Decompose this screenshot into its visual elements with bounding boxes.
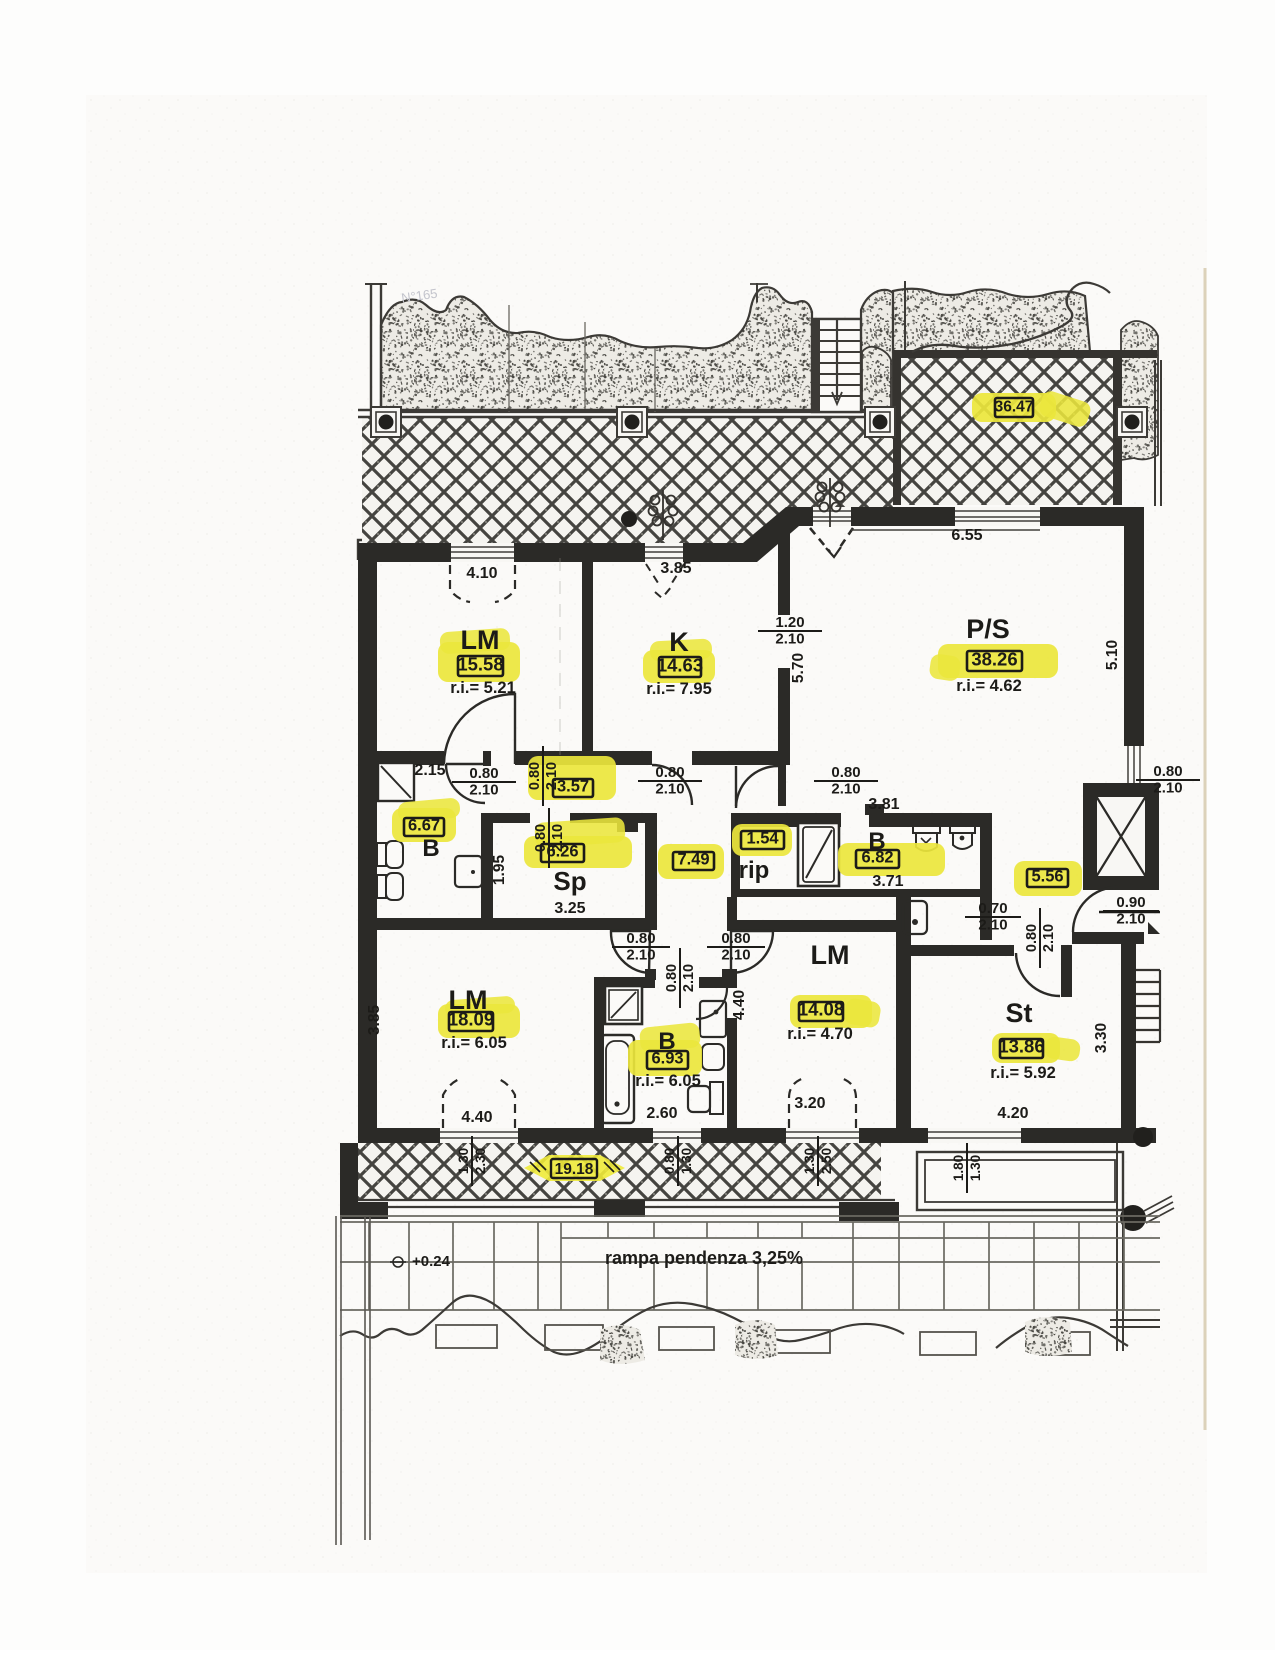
svg-text:6.67: 6.67 <box>408 817 440 835</box>
svg-text:0.70: 0.70 <box>978 900 1007 917</box>
svg-text:4.40: 4.40 <box>461 1109 492 1126</box>
svg-text:r.i.= 6.05: r.i.= 6.05 <box>441 1034 507 1052</box>
svg-text:rip: rip <box>739 857 770 884</box>
svg-text:LM: LM <box>461 625 500 655</box>
svg-text:1.95: 1.95 <box>491 855 508 886</box>
svg-text:5.56: 5.56 <box>1031 868 1063 886</box>
svg-text:2.10: 2.10 <box>626 947 655 964</box>
svg-text:P/S: P/S <box>966 614 1010 644</box>
svg-text:0.80: 0.80 <box>626 930 655 947</box>
svg-text:1.30: 1.30 <box>456 1148 471 1174</box>
svg-text:2.10: 2.10 <box>550 824 566 852</box>
svg-text:2.15: 2.15 <box>414 762 445 779</box>
svg-text:B: B <box>868 828 885 855</box>
svg-text:3.30: 3.30 <box>1093 1023 1110 1053</box>
svg-text:LM: LM <box>449 985 488 1015</box>
svg-text:38.26: 38.26 <box>971 649 1017 670</box>
svg-text:4.40: 4.40 <box>731 990 748 1020</box>
svg-text:4.20: 4.20 <box>997 1105 1028 1122</box>
svg-text:2.10: 2.10 <box>1153 780 1182 797</box>
svg-text:2.10: 2.10 <box>721 947 750 964</box>
svg-text:2.10: 2.10 <box>1041 924 1057 952</box>
svg-text:LM: LM <box>811 940 850 970</box>
svg-text:0.80: 0.80 <box>1153 763 1182 780</box>
svg-text:14.63: 14.63 <box>657 655 703 676</box>
svg-text:13.86: 13.86 <box>998 1036 1044 1057</box>
svg-text:3.85: 3.85 <box>660 560 691 577</box>
svg-text:0.80: 0.80 <box>533 824 549 852</box>
svg-text:2.60: 2.60 <box>646 1105 677 1122</box>
svg-text:St: St <box>1006 998 1033 1028</box>
svg-text:15.58: 15.58 <box>457 654 503 675</box>
svg-text:0.80: 0.80 <box>831 764 860 781</box>
svg-text:0.80: 0.80 <box>664 964 680 992</box>
svg-text:3.25: 3.25 <box>554 900 585 917</box>
svg-text:0.80: 0.80 <box>721 930 750 947</box>
svg-text:3.57: 3.57 <box>557 778 589 796</box>
svg-text:3.20: 3.20 <box>794 1095 825 1112</box>
svg-text:1.20: 1.20 <box>775 614 804 631</box>
svg-text:2.10: 2.10 <box>469 782 498 799</box>
svg-text:3.81: 3.81 <box>868 796 899 813</box>
svg-text:2.30: 2.30 <box>473 1148 488 1174</box>
svg-text:r.i.= 5.92: r.i.= 5.92 <box>990 1064 1056 1082</box>
svg-text:0.90: 0.90 <box>1116 894 1145 911</box>
svg-text:r.i.= 4.62: r.i.= 4.62 <box>956 677 1022 695</box>
svg-text:2.10: 2.10 <box>1116 911 1145 928</box>
svg-text:2.10: 2.10 <box>655 781 684 798</box>
svg-text:r.i.= 4.70: r.i.= 4.70 <box>787 1025 853 1043</box>
svg-text:r.i.= 5.21: r.i.= 5.21 <box>450 679 516 697</box>
svg-text:0.80: 0.80 <box>1024 924 1040 952</box>
svg-text:6.55: 6.55 <box>951 527 982 544</box>
svg-text:7.49: 7.49 <box>677 851 709 869</box>
svg-text:19.18: 19.18 <box>555 1161 594 1178</box>
svg-text:2.10: 2.10 <box>544 762 560 790</box>
svg-text:B: B <box>422 835 439 862</box>
svg-text:1.30: 1.30 <box>968 1155 983 1181</box>
svg-text:5.70: 5.70 <box>790 653 807 683</box>
svg-text:2.10: 2.10 <box>681 964 697 992</box>
svg-text:3.85: 3.85 <box>366 1005 383 1036</box>
svg-text:36.47: 36.47 <box>995 399 1034 416</box>
svg-text:Sp: Sp <box>553 866 586 896</box>
svg-text:2.10: 2.10 <box>831 781 860 798</box>
svg-text:0.80: 0.80 <box>655 764 684 781</box>
svg-text:3.71: 3.71 <box>872 873 903 890</box>
svg-text:14.08: 14.08 <box>798 999 844 1020</box>
svg-text:1.30: 1.30 <box>802 1148 817 1174</box>
svg-text:r.i.= 6.05: r.i.= 6.05 <box>635 1072 701 1090</box>
svg-text:4.10: 4.10 <box>466 565 497 582</box>
svg-text:1.30: 1.30 <box>679 1148 694 1174</box>
svg-text:2.10: 2.10 <box>775 631 804 648</box>
svg-text:2.50: 2.50 <box>819 1148 834 1174</box>
svg-text:0.80: 0.80 <box>662 1148 677 1174</box>
svg-text:5.10: 5.10 <box>1104 640 1121 670</box>
svg-text:0.80: 0.80 <box>469 765 498 782</box>
svg-text:B: B <box>658 1028 675 1055</box>
svg-text:2.10: 2.10 <box>978 917 1007 934</box>
svg-text:rampa pendenza 3,25%: rampa pendenza 3,25% <box>605 1248 803 1268</box>
svg-text:K: K <box>669 627 689 657</box>
svg-text:1.80: 1.80 <box>951 1155 966 1181</box>
svg-text:1.54: 1.54 <box>746 830 779 848</box>
svg-text:0.80: 0.80 <box>527 762 543 790</box>
svg-text:r.i.= 7.95: r.i.= 7.95 <box>646 680 712 698</box>
svg-text:+0.24: +0.24 <box>412 1253 451 1270</box>
